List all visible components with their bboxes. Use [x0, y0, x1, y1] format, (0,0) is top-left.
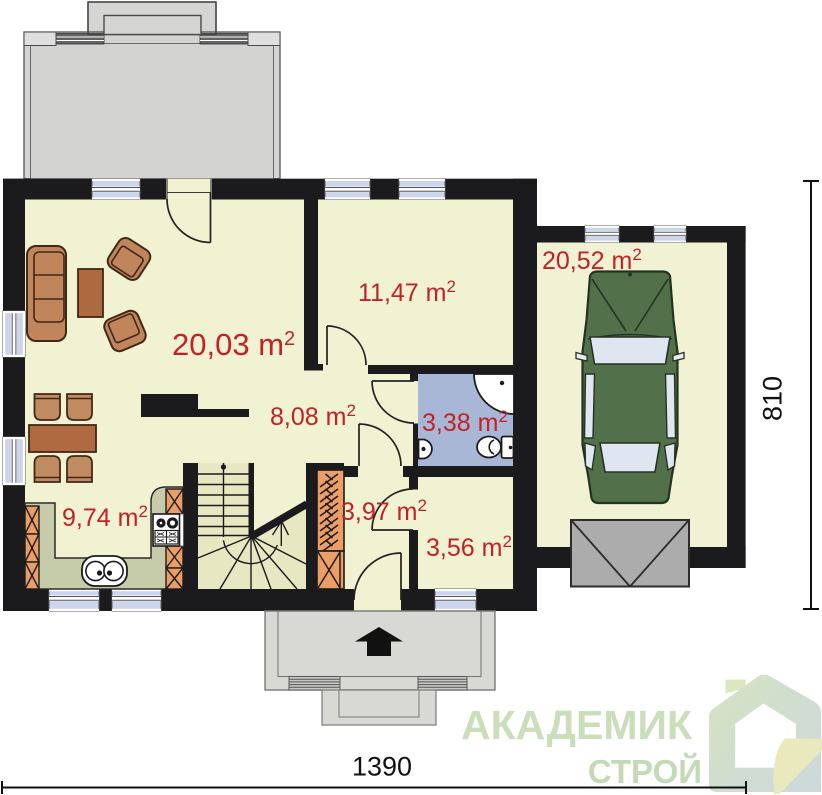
- svg-text:9,74 m2: 9,74 m2: [62, 502, 148, 532]
- svg-text:3,38 m2: 3,38 m2: [422, 407, 508, 437]
- svg-text:11,47 m2: 11,47 m2: [358, 277, 456, 307]
- svg-text:20,52 m2: 20,52 m2: [542, 245, 642, 275]
- svg-text:АКАДЕМИК: АКАДЕМИК: [461, 702, 693, 748]
- svg-text:СТРОЙ: СТРОЙ: [588, 752, 702, 790]
- svg-text:1390: 1390: [352, 752, 412, 782]
- svg-text:3,56 m2: 3,56 m2: [426, 532, 512, 562]
- svg-text:3,97 m2: 3,97 m2: [341, 496, 427, 526]
- svg-text:8,08 m2: 8,08 m2: [270, 401, 356, 431]
- svg-text:810: 810: [758, 376, 788, 421]
- svg-text:20,03 m2: 20,03 m2: [172, 327, 295, 362]
